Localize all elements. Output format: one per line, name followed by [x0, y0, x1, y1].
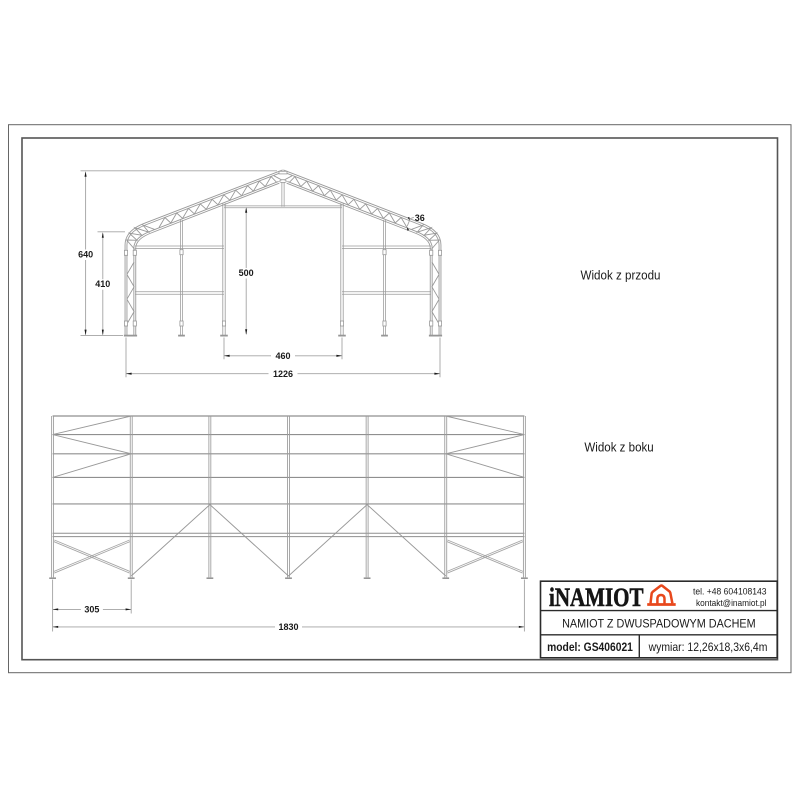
svg-text:wymiar: 12,26x18,3x6,4m: wymiar: 12,26x18,3x6,4m [648, 640, 768, 654]
svg-text:305: 305 [84, 604, 99, 614]
svg-text:1226: 1226 [273, 369, 293, 379]
svg-text:410: 410 [95, 279, 110, 289]
svg-text:640: 640 [78, 250, 93, 260]
svg-text:1830: 1830 [278, 622, 298, 632]
svg-text:460: 460 [275, 351, 290, 361]
svg-text:Widok z boku: Widok z boku [584, 441, 653, 455]
svg-text:500: 500 [239, 268, 254, 278]
svg-text:tel. +48 604108143: tel. +48 604108143 [693, 586, 767, 596]
svg-text:36: 36 [415, 213, 425, 223]
svg-text:model: GS406021: model: GS406021 [547, 640, 633, 654]
svg-text:NAMIOT Z DWUSPADOWYM DACHEM: NAMIOT Z DWUSPADOWYM DACHEM [562, 616, 756, 630]
svg-text:kontakt@inamiot.pl: kontakt@inamiot.pl [696, 598, 767, 608]
svg-text:iNAMIOT: iNAMIOT [549, 583, 644, 612]
svg-text:Widok z przodu: Widok z przodu [581, 269, 661, 283]
